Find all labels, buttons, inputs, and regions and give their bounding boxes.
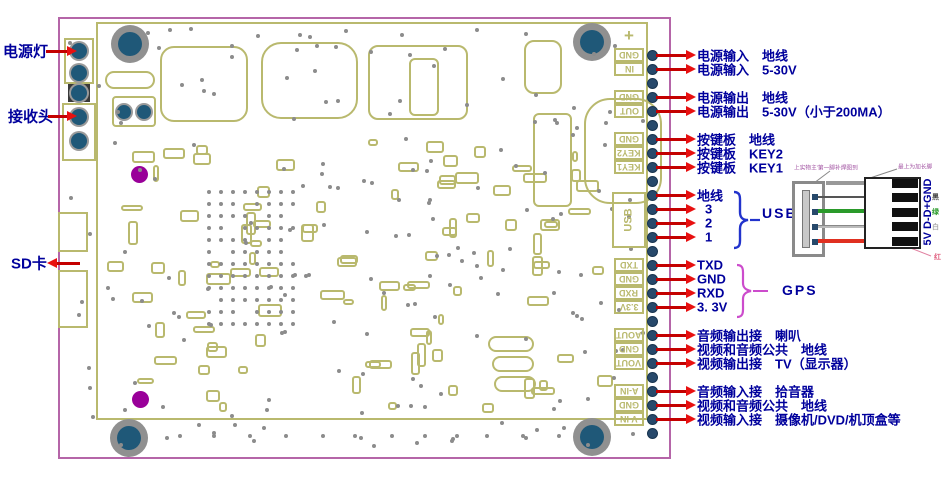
edge-pad: TXD [614,258,644,272]
edge-pad-text: VOUT [616,358,641,368]
pin-dot [647,120,658,131]
arrow-shaft [656,404,687,407]
arrow-head [686,358,696,368]
edge-pad-text: 3.3V [620,302,639,312]
pin-label: TXD [697,258,723,273]
arrow-head [67,46,77,56]
edge-pad-text: GND [619,400,639,410]
arrow-shaft [656,362,687,365]
pin-label: RXD [697,286,724,301]
arrow-head [686,302,696,312]
pin-label: 1 [705,230,712,245]
edge-pad-text: AOUT [616,330,642,340]
arrow-shaft [656,152,687,155]
usb-socket-tongue [802,190,810,248]
arrow-head [686,260,696,270]
edge-pad: RXD [614,286,644,300]
pin-dot [647,372,658,383]
arrow-head [686,148,696,158]
pin-label: 3 [705,202,712,217]
arrow-shaft [656,194,687,197]
arrow-shaft [656,208,687,211]
arrow-head [686,106,696,116]
arrow-shaft [656,138,687,141]
pin-label: 电源输入 5-30V [697,60,797,79]
arrow-shaft [656,264,687,267]
edge-pad-text: GND [619,134,639,144]
edge-pad: IN [614,62,644,76]
arrow-shaft [656,236,687,239]
arrow-shaft [656,348,687,351]
arrow-shaft [656,110,687,113]
edge-pad: GND [614,342,644,356]
edge-pad: 3.3V [614,300,644,314]
arrow-shaft [656,334,687,337]
arrow-head [686,218,696,228]
edge-pad: KEY2 [614,146,644,160]
edge-pad: GND [614,132,644,146]
arrow-head [686,330,696,340]
wire-label-red: 红 [934,252,941,262]
arrow-shaft [48,115,69,118]
usb-note-right: 最上为加长脚 [898,162,932,171]
gps-group-label: GPS [782,282,818,298]
panel-label: SD卡 [11,253,47,274]
edge-pad: A-IN [614,384,644,398]
usb-header-pin-dminus [892,222,918,231]
arrow-head [686,190,696,200]
arrow-shaft [656,96,687,99]
arrow-head [686,386,696,396]
usb-header-pin-shield [892,179,918,188]
arrow-shaft [656,418,687,421]
panel-label: 接收头 [8,106,53,127]
arrow-shaft [656,306,687,309]
arrow-shaft [656,68,687,71]
edge-pad-text: TXD [620,260,638,270]
pin-dot [647,78,658,89]
arrow-head [47,258,57,268]
arrow-head [686,64,696,74]
edge-pad-text: USB [623,208,635,231]
pin-label: 视频输出接 TV（显示器） [697,354,857,373]
edge-pad-text: RXD [619,288,638,298]
pin-label: 按键板 KEY1 [697,158,783,177]
edge-pad: USB [612,192,646,248]
edge-pad: OUT [614,104,644,118]
pin-dot [647,176,658,187]
edge-pad: VOUT [614,356,644,370]
edge-pad-text: GND [619,50,639,60]
edge-pad-text: GND [619,344,639,354]
arrow-shaft [656,222,687,225]
pin-dot [647,246,658,257]
panel-label: 电源灯 [3,41,48,62]
edge-pad: GND [614,48,644,62]
edge-pad: KEY1 [614,160,644,174]
arrow-shaft [55,262,80,265]
arrow-head [686,344,696,354]
arrow-head [686,92,696,102]
edge-pad-text: KEY2 [617,148,641,158]
arrow-head [67,111,77,121]
wire-label-black: 黑 [932,192,939,202]
edge-pad-text: GND [619,274,639,284]
arrow-head [686,400,696,410]
arrow-shaft [656,166,687,169]
edge-pad: AOUT [614,328,644,342]
usb-header-pin-gnd [892,193,918,202]
usb-header-pin-5v [892,237,918,246]
usb-header-pin-dplus [892,208,918,217]
arrow-head [686,414,696,424]
arrow-shaft [656,292,687,295]
pcb-pinout-diagram: GNDINGNDOUTGNDKEY2KEY1USBTXDGNDRXD3.3VAO… [0,0,950,477]
arrow-head [686,274,696,284]
edge-pad-text: A-IN [620,386,639,396]
edge-pad: GND [614,272,644,286]
edge-pad: GND [614,398,644,412]
pin-dot [647,316,658,327]
arrow-head [686,50,696,60]
wire-label-green: 绿 [932,207,939,217]
wire-label-white: 白 [932,222,939,232]
arrow-head [686,288,696,298]
pin-label: 2 [705,216,712,231]
edge-pad-text: V-IN [620,414,638,424]
pin-label: 3. 3V [697,300,727,315]
arrow-head [686,204,696,214]
pin-dot [647,428,658,439]
arrow-shaft [656,390,687,393]
arrow-shaft [46,50,69,53]
edge-pad: V-IN [614,412,644,426]
edge-pad-text: IN [625,64,634,74]
arrow-head [686,232,696,242]
arrow-head [686,134,696,144]
edge-pad: GND [614,90,644,104]
usb-note-left: 上实物主'第一脚补焊图到 [794,163,858,172]
plus-polarity-mark: + [624,26,634,46]
edge-pad-text: OUT [620,106,639,116]
arrow-shaft [656,54,687,57]
arrow-shaft [656,278,687,281]
edge-pad-text: GND [619,92,639,102]
pin-label: 电源输出 5-30V（小于200MA） [697,102,891,121]
pin-label: GND [697,272,726,287]
arrow-head [686,162,696,172]
edge-pad-text: KEY1 [617,162,641,172]
pin-label: 视频输入接 摄像机/DVD/机顶盒等 [697,410,901,429]
